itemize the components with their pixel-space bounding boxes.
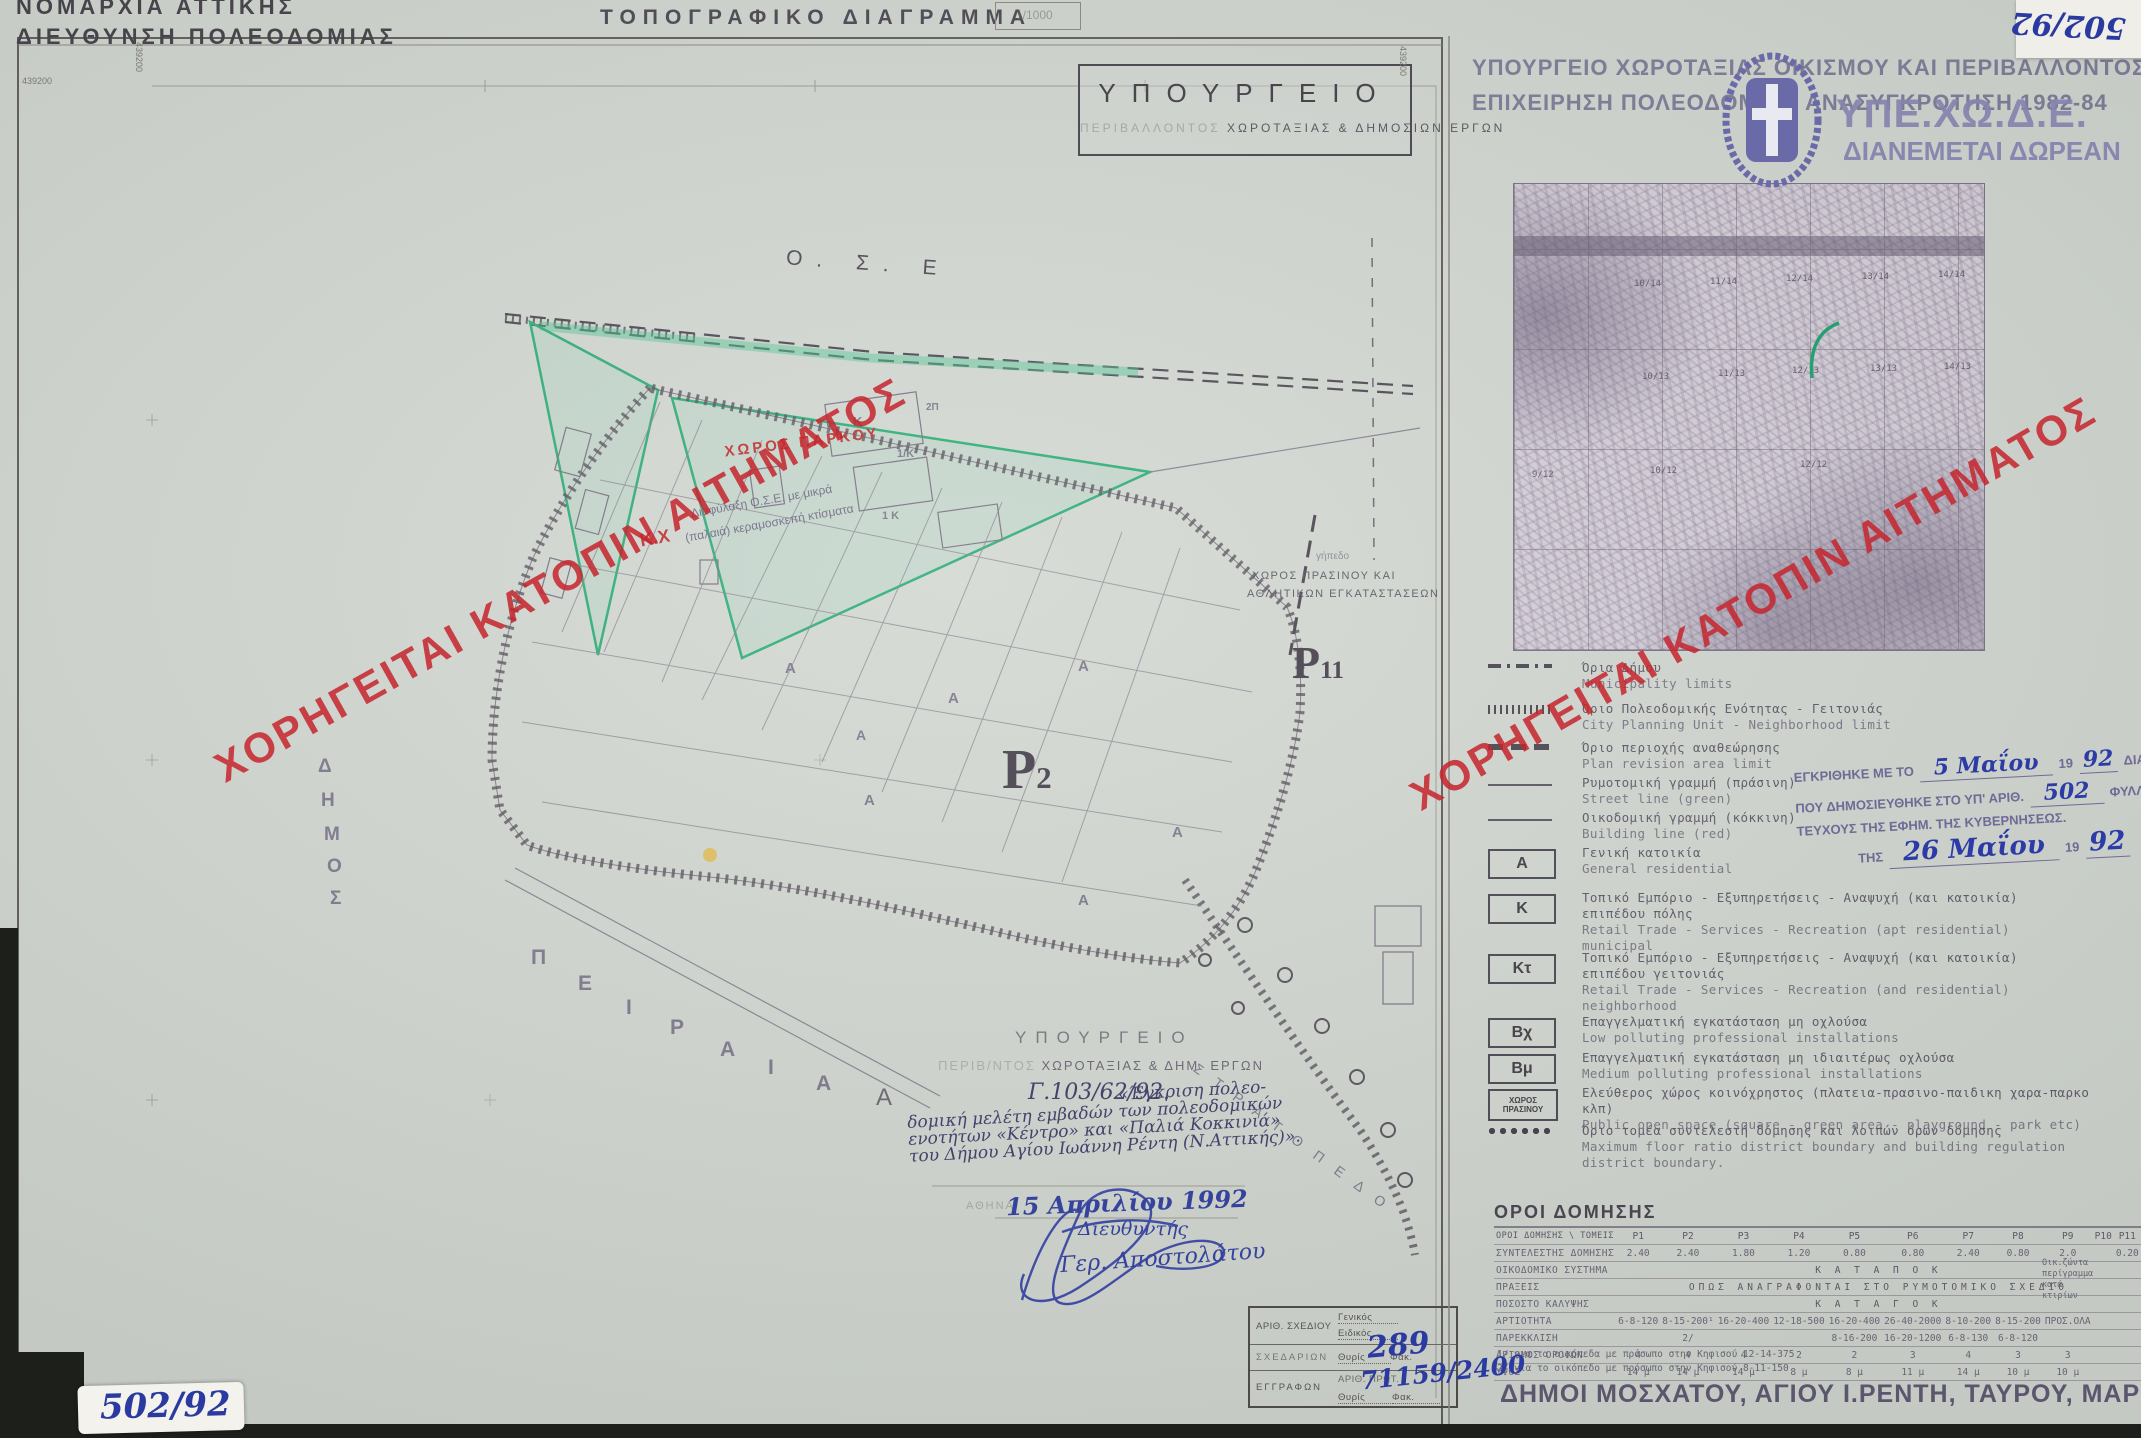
legend-symbol: Κτ — [1488, 954, 1556, 984]
ministry-box-line2-faded: ΠΕΡΙΒΑΛΛΟΝΤΟΣ — [1080, 121, 1221, 135]
approval-stamp: ΕΓΚΡΙΘΗΚΕ ΜΕ ΤΟ5 Μαΐου1992ΔΙΑΤΑΓΜΑ ΠΟΥ Δ… — [1793, 741, 2141, 878]
legend-item: Βχ Επαγγελματική εγκατάσταση μη οχλούσα … — [1488, 1014, 2128, 1048]
map-letter: Μ — [324, 824, 340, 846]
dbox-r3-label: ΕΓΓΡΑΦΩΝ — [1256, 1382, 1322, 1393]
zone-letter: Α — [1078, 892, 1089, 909]
building-terms-section: ΟΡΟΙ ΔΟΜΗΣΗΣ ΟΡΟΙ ΔΟΜΗΣΗΣ \ ΤΟΜΕΙΣΡ1Ρ2Ρ3… — [1494, 1202, 2141, 1381]
dbox-r1a: Γενικός — [1338, 1312, 1398, 1324]
sheet-divider — [1448, 36, 1450, 1428]
ministry-box: ΥΠΟΥΡΓΕΙΟ ΠΕΡΙΒΑΛΛΟΝΤΟΣ ΧΩΡΟΤΑΞΙΑΣ & ΔΗΜ… — [1078, 64, 1412, 156]
zone-letter: Α — [1078, 658, 1089, 675]
ypexode-emblem — [1712, 48, 1832, 193]
dbox-r3c: Φακ. — [1392, 1392, 1440, 1404]
legend-item: Κ Τοπικό Εμπόριο - Εξυπηρετήσεις - Αναψυ… — [1488, 890, 2128, 954]
yellow-marker-dot — [703, 848, 717, 862]
sheet-number-bottom: 502/92 — [99, 1384, 231, 1427]
dbox-r1-label: ΑΡΙΘ. ΣΧΕΔΙΟΥ — [1256, 1321, 1331, 1332]
map-letter: Ι — [626, 996, 632, 1020]
oroi-domisis-title: ΟΡΟΙ ΔΟΜΗΣΗΣ — [1494, 1202, 2141, 1223]
handwritten-role: Διευθυντής — [1078, 1218, 1188, 1240]
sheet-number-top: 502/92 — [2029, 6, 2127, 46]
prefecture-title: ΝΟΜΑΡΧΙΑ ΑΤΤΙΚΗΣ — [16, 0, 296, 20]
green-area-label-2: ΑΘΛΗΤΙΚΩΝ ΕΓΚΑΤΑΣΤΑΣΕΩΝ — [1247, 588, 1439, 600]
legend-symbol — [1488, 784, 1552, 786]
page-title: ΤΟΠΟΓΡΑΦΙΚΟ ΔΙΑΓΡΑΜΜΑ — [600, 6, 1032, 30]
survey-ticks — [146, 80, 1151, 1106]
map-letter: Π — [531, 946, 546, 970]
legend-item: Βμ Επαγγελματική εγκατάσταση μη ιδιαιτέρ… — [1488, 1050, 2128, 1084]
gipedo-label: γήπεδο — [1316, 551, 1349, 562]
map-letter: Ε — [578, 972, 592, 996]
ministry-box-line2: ΧΩΡΟΤΑΞΙΑΣ & ΔΗΜΟΣΙΩΝ ΕΡΓΩΝ — [1227, 121, 1505, 135]
green-pen-mark — [1811, 323, 1839, 378]
map-letter: Ι — [768, 1056, 774, 1080]
map-letter: Δ — [318, 756, 332, 778]
legend-symbol: Βχ — [1488, 1018, 1556, 1048]
map-letter: Ο — [327, 856, 342, 878]
scale-value: 1/1000 — [1016, 8, 1053, 22]
sheet-number-chip: 502/92 — [77, 1382, 244, 1434]
margin-letter-a: Α — [876, 1084, 892, 1112]
oroi-domisis-table: ΟΡΟΙ ΔΟΜΗΣΗΣ \ ΤΟΜΕΙΣΡ1Ρ2Ρ3Ρ4Ρ5Ρ6Ρ7Ρ8Ρ9Ρ… — [1494, 1226, 2141, 1381]
ypexode-brand: ΥΠΕ.ΧΩ.Δ.Ε. — [1836, 92, 2088, 137]
scanned-topographic-diagram: ΝΟΜΑΡΧΙΑ ΑΤΤΙΚΗΣ ΔΙΕΥΘΥΝΣΗ ΠΟΛΕΟΔΟΜΙΑΣ Τ… — [0, 0, 2141, 1438]
zone-letter: 1/Κ — [897, 448, 914, 460]
zone-letter: Α — [785, 660, 796, 677]
legend-item: Κτ Τοπικό Εμπόριο - Εξυπηρετήσεις - Αναψ… — [1488, 950, 2128, 1014]
zone-letter: 1 Κ — [882, 510, 899, 522]
p11-boundary-dash — [1290, 515, 1315, 655]
city-plan-drawing — [0, 0, 1450, 1438]
zone-letter: Α — [1172, 824, 1183, 841]
map-letter: Α — [816, 1072, 831, 1096]
map-letter: Η — [321, 790, 335, 812]
dashed-boundary-right — [1372, 238, 1374, 560]
scan-edge-bottom — [0, 1424, 2141, 1438]
planning-directorate-title: ΔΙΕΥΘΥΝΣΗ ΠΟΛΕΟΔΟΜΙΑΣ — [16, 24, 397, 50]
ministry-box-line1: ΥΠΟΥΡΓΕΙΟ — [1080, 78, 1410, 109]
legend-item: Όριο τομέα συντελεστή δόμησης και λοιπών… — [1488, 1123, 2128, 1171]
sheet-number-strip: 502/92 — [2016, 0, 2141, 58]
green-area-label-1: ΧΩΡΟΣ ΠΡΑΣΙΝΟΥ ΚΑΙ — [1252, 570, 1396, 582]
zone-letter: 2Π — [926, 402, 939, 413]
frame-coordinate-right: 439200 — [1398, 46, 1408, 76]
legend-symbol: ΧΩΡΟΣ ΠΡΑΣΙΝΟΥ — [1488, 1089, 1558, 1121]
dbox-r2-label: ΣΧΕΔΑΡΙΩΝ — [1256, 1352, 1328, 1363]
legend-symbol: Βμ — [1488, 1054, 1556, 1084]
sector-p2-label: Ρ2 — [1002, 738, 1052, 802]
map-letter: Α — [720, 1038, 735, 1062]
legend-symbol: Α — [1488, 849, 1556, 879]
scale-box: 1/1000 — [995, 2, 1081, 30]
zone-letter: Α — [948, 690, 959, 707]
map-letter: Σ — [330, 888, 341, 910]
sector-p11-label: Ρ11 — [1292, 636, 1344, 689]
legend-symbol — [1488, 664, 1552, 668]
zone-letter: Α — [856, 727, 866, 743]
legend-symbol — [1488, 819, 1552, 821]
map-letter: Ρ — [670, 1016, 684, 1040]
legend-symbol — [1488, 1127, 1552, 1135]
distributed-free-label: ΔΙΑΝΕΜΕΤΑΙ ΔΩΡΕΑΝ — [1843, 136, 2121, 167]
zone-letter: Α — [864, 792, 875, 809]
stamp-ministry-line2: ΠΕΡΙΒ/ΝΤΟΣ ΧΩΡΟΤΑΞΙΑΣ & ΔΗΜ. ΕΡΓΩΝ — [938, 1058, 1264, 1073]
municipalities-line: ΔΗΜΟΙ ΜΟΣΧΑΤΟΥ, ΑΓΙΟΥ Ι.ΡΕΝΤΗ, ΤΑΥΡΟΥ, Μ… — [1500, 1380, 2141, 1409]
frame-coordinate-left: 439200 — [134, 42, 144, 72]
legend-symbol: Κ — [1488, 894, 1556, 924]
frame-coordinate: 439200 — [22, 76, 52, 86]
stamp-ministry-line1: ΥΠΟΥΡΓΕΙΟ — [1015, 1028, 1194, 1048]
